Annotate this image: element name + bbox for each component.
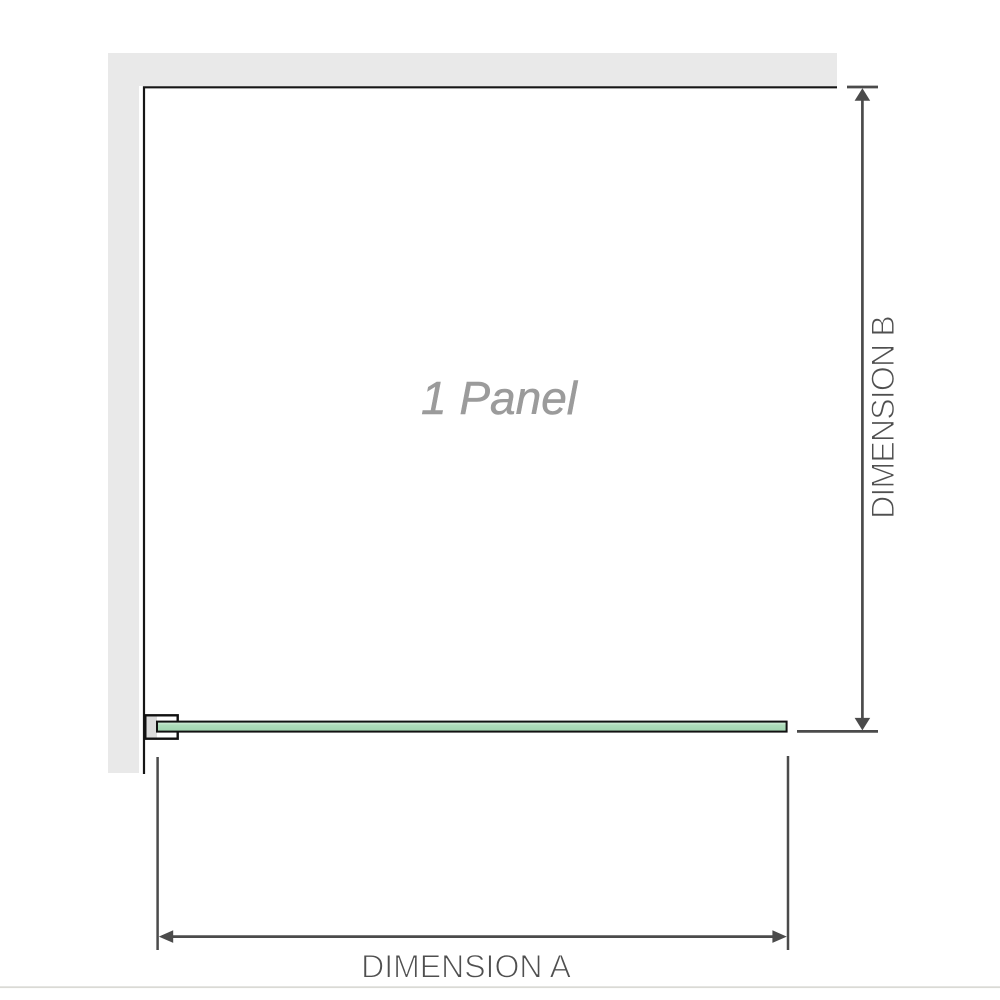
svg-text:1 Panel: 1 Panel — [421, 372, 579, 424]
svg-text:DIMENSION B: DIMENSION B — [865, 316, 901, 519]
svg-text:DIMENSION A: DIMENSION A — [361, 949, 571, 985]
